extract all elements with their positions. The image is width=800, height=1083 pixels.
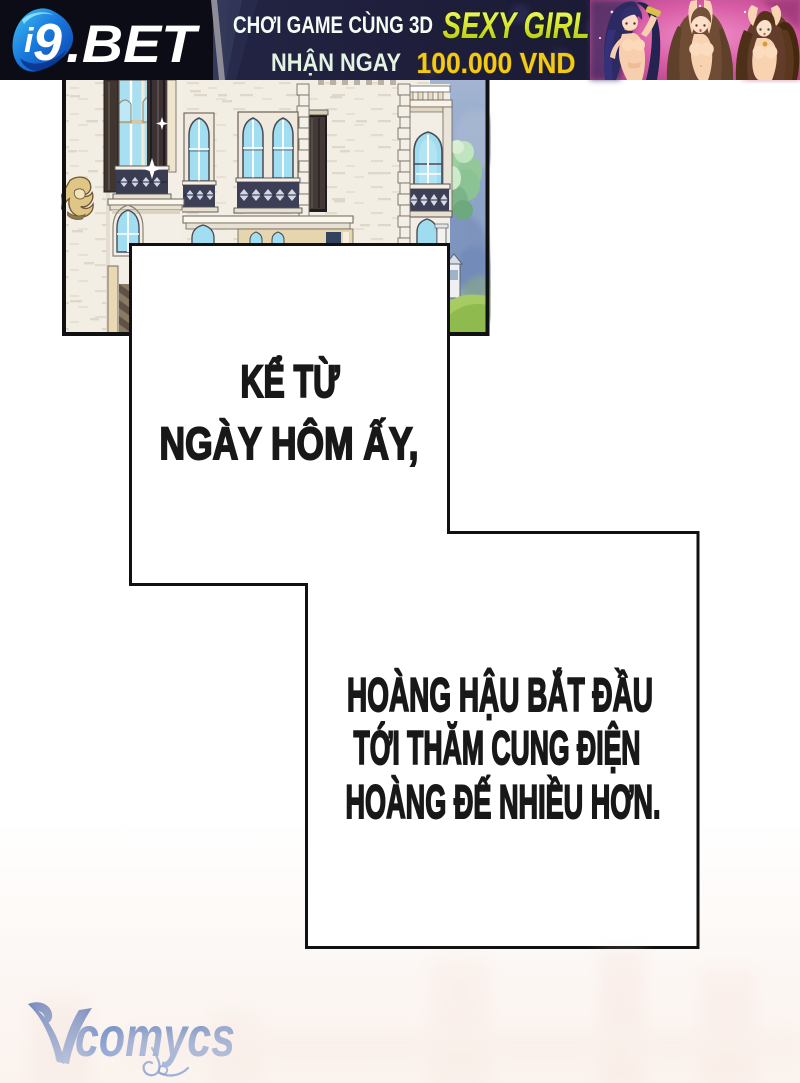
svg-text:NGÀY HÔM ẤY,: NGÀY HÔM ẤY, <box>160 418 419 469</box>
svg-text:9: 9 <box>33 14 62 72</box>
svg-text:HOÀNG HẬU BẮT ĐẦU: HOÀNG HẬU BẮT ĐẦU <box>347 668 653 721</box>
svg-text:KỂ TỪ: KỂ TỪ <box>241 356 340 407</box>
svg-text:CHƠI GAME CÙNG 3D: CHƠI GAME CÙNG 3D <box>233 11 433 39</box>
svg-text:.BET: .BET <box>66 15 201 74</box>
svg-text:NHẬN NGAY: NHẬN NGAY <box>271 47 401 77</box>
svg-text:SEXY GIRL: SEXY GIRL <box>443 5 590 46</box>
svg-text:100.000 VND: 100.000 VND <box>417 48 576 80</box>
svg-text:HOÀNG ĐẾ NHIỀU HƠN.: HOÀNG ĐẾ NHIỀU HƠN. <box>346 775 661 828</box>
svg-text:TỚI THĂM CUNG ĐIỆN: TỚI THĂM CUNG ĐIỆN <box>354 721 641 774</box>
